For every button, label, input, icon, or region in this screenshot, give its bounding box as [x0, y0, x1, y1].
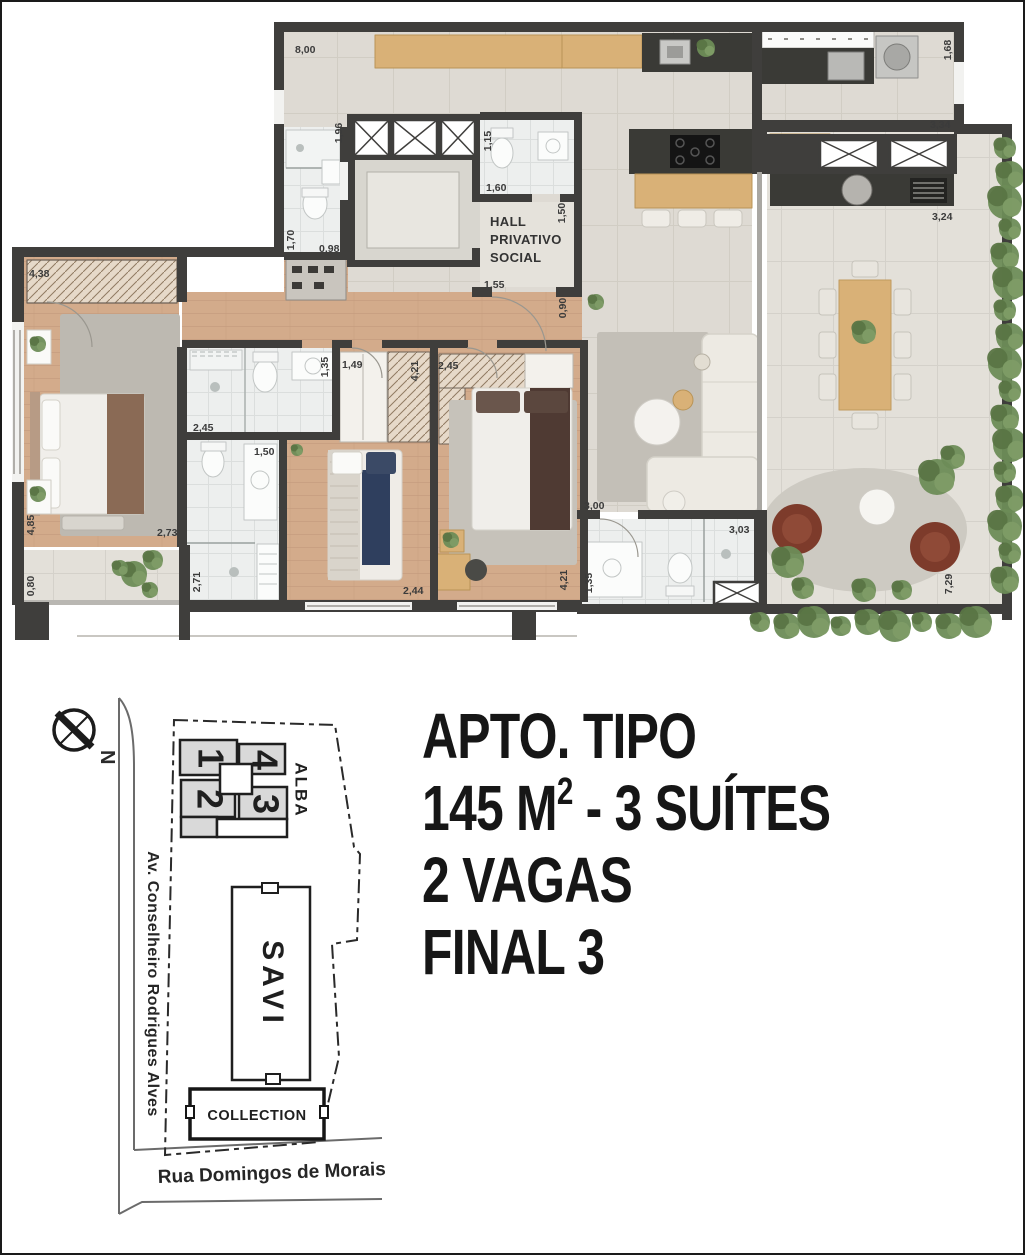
plant: [1003, 307, 1015, 319]
plant: [862, 587, 875, 600]
dimension-label: 3,34: [930, 119, 951, 131]
dimension-label: 1,35: [319, 357, 331, 378]
apartment-floor-plan: HALL PRIVATIVO SOCIAL 8,001,961,151,601,…: [2, 2, 1025, 662]
coffee-table: [634, 399, 680, 445]
stool: [678, 210, 706, 227]
dimension-label: 0,90: [557, 298, 569, 319]
plant: [921, 620, 932, 631]
plant: [1002, 198, 1021, 217]
plant: [37, 342, 46, 351]
stool: [714, 210, 742, 227]
plant: [1002, 522, 1021, 541]
plant: [1003, 577, 1018, 592]
dining-table: [839, 280, 891, 410]
shower: [190, 350, 242, 370]
plant: [801, 585, 813, 597]
dimension-label: 1,96: [333, 123, 345, 144]
collection-label: COLLECTION: [207, 1108, 306, 1124]
linen-cabinet: [257, 544, 279, 600]
corridor-floor: [182, 292, 582, 347]
plant: [149, 588, 158, 597]
plant: [1003, 469, 1015, 481]
bench: [62, 516, 124, 530]
dimension-label: 0,80: [25, 576, 37, 597]
plant: [152, 558, 163, 569]
headline-line-4: FINAL 3: [422, 916, 830, 988]
hall-line-3: SOCIAL: [490, 250, 542, 265]
dimension-label: 4,21: [558, 570, 570, 591]
toilet: [253, 360, 277, 392]
desk-chair: [465, 559, 487, 581]
plant: [119, 566, 128, 575]
kitchen-counter: [642, 33, 752, 72]
plant: [1003, 253, 1018, 268]
site-plan: N Av. Conselheiro Rodrigues Alves Rua Do…: [44, 692, 424, 1252]
floor-plan-sheet: HALL PRIVATIVO SOCIAL 8,001,961,151,601,…: [0, 0, 1025, 1255]
plant: [1003, 145, 1015, 157]
street-left-label: Av. Conselheiro Rodrigues Alves: [144, 851, 161, 1117]
plant: [947, 623, 961, 637]
square-meter-sup: 2: [557, 771, 573, 813]
plant: [759, 620, 770, 631]
unit-number-4: 4: [244, 750, 285, 770]
plant: [785, 623, 799, 637]
side-table: [673, 390, 693, 410]
shoe-closet: [286, 258, 346, 300]
pouf: [663, 491, 685, 513]
grill: [910, 178, 947, 203]
plant: [1008, 388, 1020, 400]
plant: [705, 46, 715, 56]
dimension-label: 4,85: [25, 515, 37, 536]
gourmet-sink: [842, 175, 872, 205]
terrace-table: [859, 489, 895, 525]
vanity: [538, 132, 568, 160]
plant: [812, 618, 830, 636]
dimension-label: 2,45: [193, 422, 214, 434]
dimension-label: 2,45: [438, 360, 459, 372]
street-bottom-label: Rua Domingos de Morais: [157, 1159, 386, 1188]
headline-block: APTO. TIPO 145 M2 - 3 SUÍTES 2 VAGAS FIN…: [422, 700, 945, 988]
compass: N: [54, 710, 118, 764]
dimension-label: 7,29: [943, 574, 955, 595]
master-wardrobe: [27, 260, 177, 303]
basket: [694, 354, 710, 370]
dimension-label: 1,49: [342, 359, 363, 371]
dimension-label: 1,60: [486, 182, 507, 194]
plant: [1002, 360, 1021, 379]
plant: [1003, 415, 1018, 430]
headline-line-3: 2 VAGAS: [422, 844, 830, 916]
plant: [901, 588, 912, 599]
plant: [840, 624, 851, 635]
toilet: [668, 553, 692, 583]
hall-line-2: PRIVATIVO: [490, 232, 562, 247]
dimension-label: 3,03: [729, 524, 750, 536]
stool: [642, 210, 670, 227]
plant: [951, 454, 964, 467]
dimension-label: 4,38: [29, 268, 50, 280]
dimension-label: 0,98: [319, 243, 340, 255]
plant: [862, 329, 875, 342]
dimension-label: 1,35: [583, 573, 595, 594]
plant: [866, 619, 880, 633]
plant: [595, 300, 604, 309]
dimension-label: 1,70: [285, 230, 297, 251]
vanity: [322, 160, 340, 184]
building-collection: COLLECTION: [186, 1089, 328, 1139]
compass-north-label: N: [96, 750, 118, 764]
plant: [893, 622, 911, 640]
dimension-label: 2,71: [191, 572, 203, 593]
service-sink: [828, 52, 864, 80]
dimension-label: 3,00: [584, 500, 605, 512]
plant: [1008, 172, 1023, 187]
closet: [525, 354, 573, 388]
hall-line-1: HALL: [490, 214, 526, 229]
headline-line-2: 145 M2 - 3 SUÍTES: [422, 772, 830, 844]
dimension-label: 1,50: [254, 446, 275, 458]
dimension-label: 2,44: [403, 585, 424, 597]
plant: [934, 473, 954, 493]
unit-number-1: 1: [190, 748, 231, 768]
toilet: [491, 138, 513, 168]
building-savi: SAVI: [232, 883, 310, 1084]
headline-line-1: APTO. TIPO: [422, 700, 830, 772]
plant: [450, 538, 459, 547]
dimension-label: 8,00: [295, 44, 316, 56]
plant: [296, 449, 303, 456]
plant: [786, 558, 804, 576]
dimension-label: 2,73: [157, 527, 178, 539]
plant: [1008, 226, 1020, 238]
dimension-label: 4,21: [409, 361, 421, 382]
kitchen-cabinets: [375, 35, 642, 68]
plant: [132, 571, 146, 585]
dimension-label: 3,24: [932, 211, 953, 223]
dimension-label: 1,50: [556, 203, 568, 224]
savi-label: SAVI: [256, 940, 289, 1028]
unit-number-3: 3: [245, 794, 286, 814]
dimension-label: 1,68: [942, 40, 954, 61]
plant: [974, 618, 992, 636]
unit-number-2: 2: [189, 789, 230, 809]
plant: [1008, 550, 1020, 562]
plant: [1008, 334, 1023, 349]
dimension-label: 1,55: [484, 279, 505, 291]
dimension-label: 1,15: [482, 131, 494, 152]
alba-label: ALBA: [292, 762, 311, 817]
plant: [1008, 496, 1023, 511]
plant: [37, 492, 46, 501]
island-table: [635, 174, 752, 208]
